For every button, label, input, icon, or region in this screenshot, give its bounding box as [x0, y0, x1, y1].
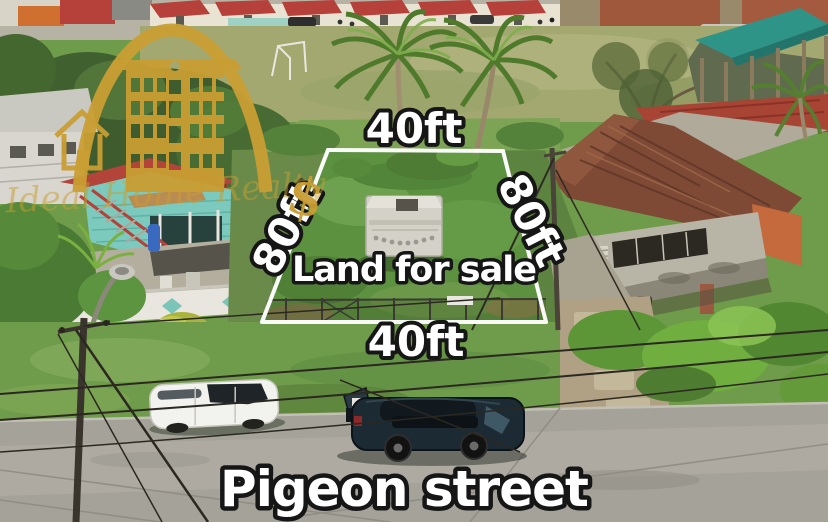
aerial-photo: 40ft 80ft 80ft Land for sale 40ft Pigeon…: [0, 0, 828, 522]
dim-bottom-width: 40ft: [368, 317, 465, 366]
scene-canvas: 40ft 80ft 80ft Land for sale 40ft Pigeon…: [0, 0, 828, 522]
dim-top-width: 40ft: [366, 104, 463, 153]
dark-suv: [337, 388, 527, 466]
land-for-sale-label: Land for sale: [292, 250, 536, 290]
street-name-label: Pigeon street: [220, 460, 588, 518]
